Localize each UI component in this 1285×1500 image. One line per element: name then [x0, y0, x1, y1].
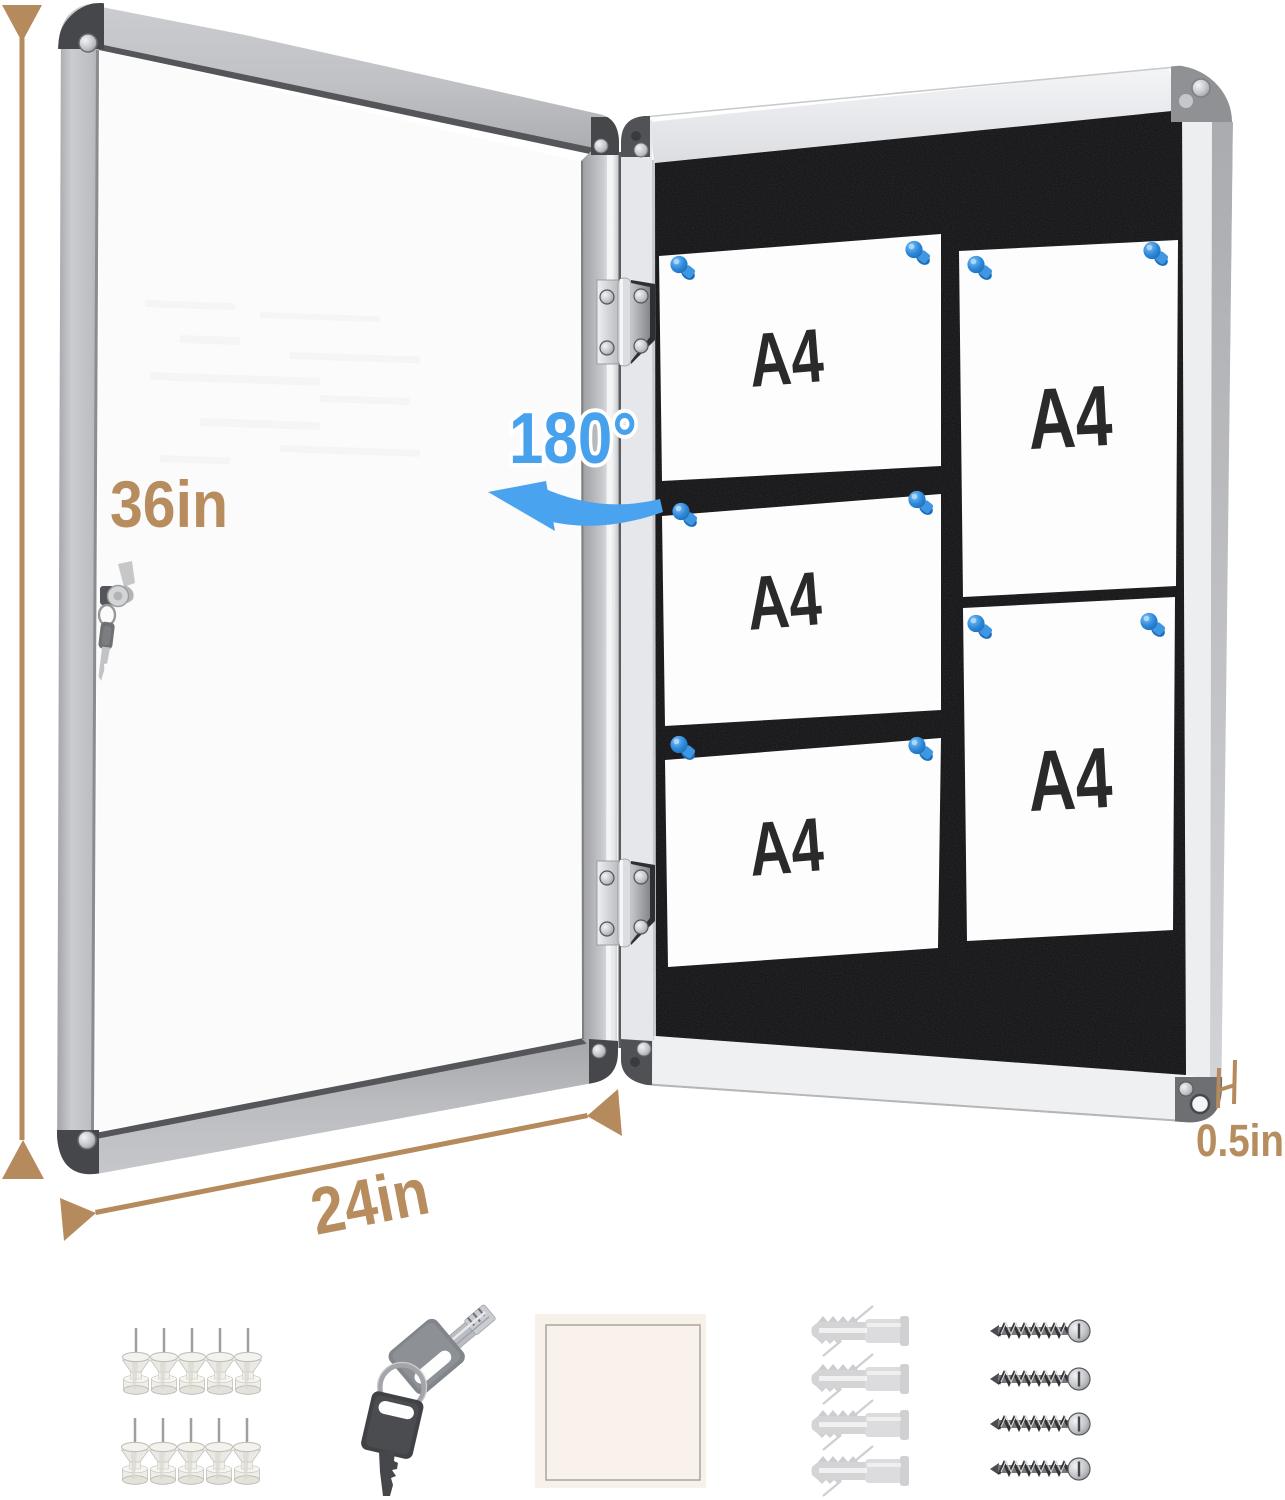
svg-text:0.5in: 0.5in: [1196, 1115, 1284, 1166]
svg-text:A4: A4: [1025, 368, 1114, 468]
svg-text:A4: A4: [746, 313, 826, 404]
svg-text:A4: A4: [746, 802, 826, 893]
svg-text:A4: A4: [1025, 730, 1114, 830]
svg-text:A4: A4: [744, 556, 824, 647]
svg-text:180°: 180°: [509, 399, 637, 479]
svg-text:36in: 36in: [110, 467, 228, 541]
